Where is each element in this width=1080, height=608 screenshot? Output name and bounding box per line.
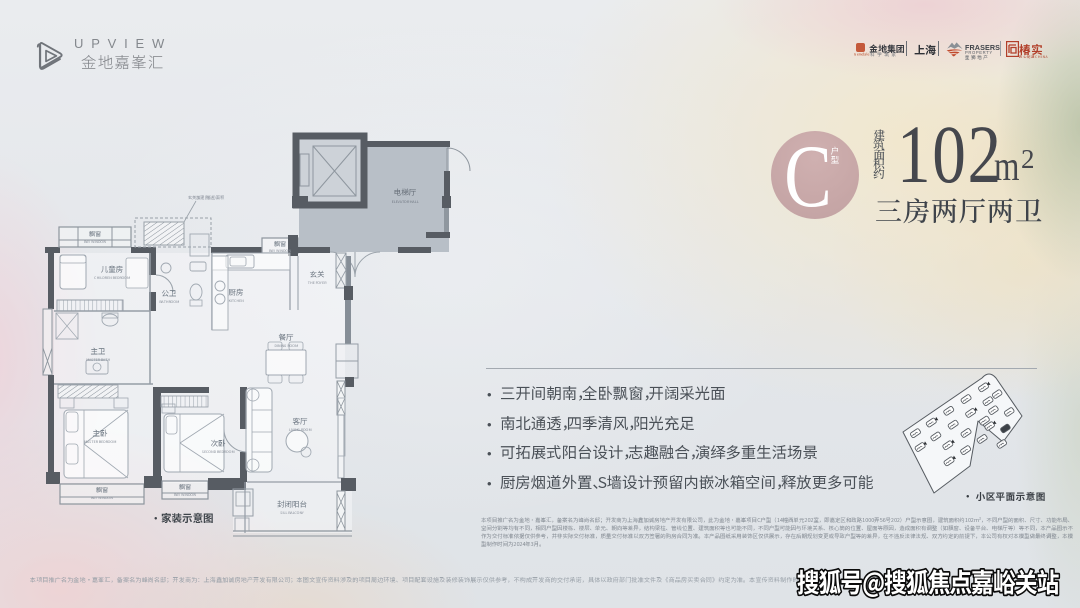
svg-text:次卧: 次卧: [211, 438, 226, 449]
svg-text:飘窗: 飘窗: [274, 239, 286, 248]
svg-text:KITCHEN: KITCHEN: [228, 299, 244, 304]
svg-text:BAY WINDOW: BAY WINDOW: [269, 249, 292, 254]
svg-text:LIVING ROOM: LIVING ROOM: [289, 428, 312, 433]
svg-text:BAY WINDOW: BAY WINDOW: [91, 496, 114, 501]
svg-text:ELEVATOR HALL: ELEVATOR HALL: [391, 200, 418, 205]
svg-text:飘窗: 飘窗: [179, 482, 191, 491]
svg-text:封闭阳台: 封闭阳台: [277, 499, 307, 510]
svg-text:BATHROOM: BATHROOM: [159, 300, 179, 305]
svg-text:飘窗: 飘窗: [96, 485, 108, 494]
svg-text:BAY WINDOW: BAY WINDOW: [174, 493, 197, 498]
svg-text:SILL BALCONY: SILL BALCONY: [280, 511, 304, 516]
svg-text:•家装示意图: •家装示意图: [151, 511, 214, 526]
svg-text:客厅: 客厅: [293, 416, 308, 427]
svg-text:BAY WINDOW: BAY WINDOW: [84, 240, 107, 245]
svg-text:飘窗: 飘窗: [89, 229, 101, 238]
svg-text:玄关: 玄关: [310, 269, 325, 280]
svg-text:SECOND BEDROOM: SECOND BEDROOM: [202, 450, 235, 455]
svg-text:MASTER BATH: MASTER BATH: [86, 358, 110, 363]
svg-text:玄关加建(赠送)面积: 玄关加建(赠送)面积: [188, 195, 225, 201]
svg-text:公卫: 公卫: [162, 288, 177, 299]
svg-text:搜狐号@搜狐焦点嘉峪关站: 搜狐号@搜狐焦点嘉峪关站: [797, 563, 1059, 600]
svg-text:THE FOYER: THE FOYER: [308, 281, 327, 286]
svg-text:厨房: 厨房: [229, 287, 244, 298]
svg-text:儿童房: 儿童房: [101, 264, 124, 275]
svg-text:餐厅: 餐厅: [279, 332, 294, 343]
svg-text:CHILDREN BEDROOM: CHILDREN BEDROOM: [94, 276, 130, 281]
svg-text:主卧: 主卧: [93, 428, 108, 439]
svg-text:电梯厅: 电梯厅: [394, 187, 417, 198]
svg-text:DINING ROOM: DINING ROOM: [274, 344, 298, 349]
svg-text:MASTER BEDROOM: MASTER BEDROOM: [84, 440, 116, 445]
svg-text:主卫: 主卫: [91, 346, 106, 357]
